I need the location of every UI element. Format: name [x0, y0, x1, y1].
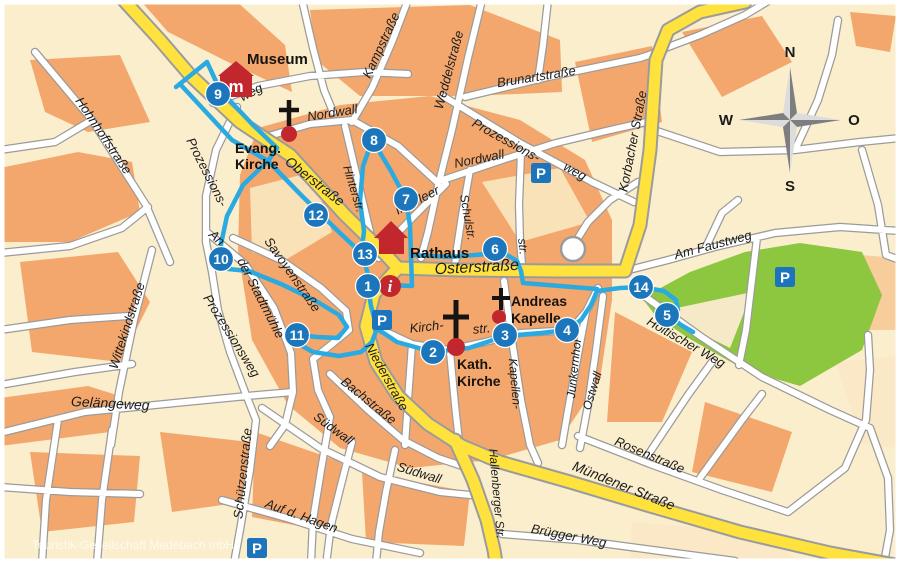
svg-text:11: 11: [290, 327, 305, 343]
andreas-kapelle-label-line2: Kapelle: [511, 310, 561, 326]
tour-stop-7[interactable]: 7: [394, 187, 419, 212]
tour-stop-13[interactable]: 13: [353, 242, 378, 267]
cul-de-sac: [561, 237, 585, 261]
svg-text:P: P: [780, 270, 790, 287]
svg-text:P: P: [536, 166, 546, 183]
tour-stop-14[interactable]: 14: [629, 275, 654, 300]
tour-stop-5[interactable]: 5: [655, 303, 680, 328]
svg-text:6: 6: [491, 241, 499, 257]
tour-stop-4[interactable]: 4: [555, 318, 580, 343]
info-icon[interactable]: i: [379, 275, 401, 297]
parking-icon-park[interactable]: P: [775, 267, 795, 287]
kath-kirche-label-line2: Kirche: [457, 373, 501, 389]
compass-south-label: S: [785, 178, 795, 195]
svg-text:1: 1: [364, 278, 372, 294]
tour-stop-11[interactable]: 11: [285, 323, 310, 348]
evang-kirche-label-line1: Evang.: [235, 140, 281, 156]
svg-text:P: P: [252, 541, 262, 558]
info-icon-letter: i: [388, 277, 393, 296]
svg-text:3: 3: [501, 327, 509, 343]
tour-stop-9[interactable]: 9: [206, 82, 231, 107]
compass-west-label: W: [719, 112, 734, 129]
parking-icon-south[interactable]: P: [247, 538, 267, 558]
svg-text:13: 13: [357, 246, 373, 262]
parking-icon-nordwall[interactable]: P: [531, 163, 551, 183]
tour-stop-8[interactable]: 8: [362, 128, 387, 153]
parking-icon-niederstrasse[interactable]: P: [372, 310, 392, 330]
svg-text:9: 9: [214, 86, 222, 102]
compass-east-label: O: [848, 112, 860, 129]
svg-text:2: 2: [429, 344, 437, 360]
street-label-str-north: str.: [515, 238, 531, 256]
museum-label: Museum: [247, 51, 308, 68]
street-label-kirchstrasse-2: str.: [472, 320, 491, 337]
svg-text:7: 7: [402, 191, 410, 207]
tour-stop-10[interactable]: 10: [209, 247, 234, 272]
svg-text:5: 5: [663, 307, 671, 323]
svg-text:10: 10: [213, 251, 229, 267]
svg-text:14: 14: [633, 279, 649, 295]
tour-stop-12[interactable]: 12: [304, 203, 329, 228]
tour-stop-6[interactable]: 6: [483, 237, 508, 262]
town-map: Hohnhoffstraße Kampstraße Weddelstraße B…: [0, 0, 900, 563]
svg-text:P: P: [377, 313, 387, 330]
tour-stop-1[interactable]: 1: [356, 274, 381, 299]
copyright-watermark: Touristik-Gesellschaft Medebach mbH: [32, 538, 234, 552]
kath-kirche-label-line1: Kath.: [457, 356, 492, 372]
andreas-kapelle-label-line1: Andreas: [511, 293, 567, 309]
svg-text:4: 4: [563, 322, 571, 338]
tour-stop-2[interactable]: 2: [421, 340, 446, 365]
svg-text:8: 8: [370, 132, 378, 148]
tour-stop-3[interactable]: 3: [493, 323, 518, 348]
svg-text:12: 12: [308, 207, 324, 223]
compass-north-label: N: [785, 44, 796, 61]
rathaus-label: Rathaus: [410, 245, 469, 262]
evang-kirche-label-line2: Kirche: [235, 156, 279, 172]
